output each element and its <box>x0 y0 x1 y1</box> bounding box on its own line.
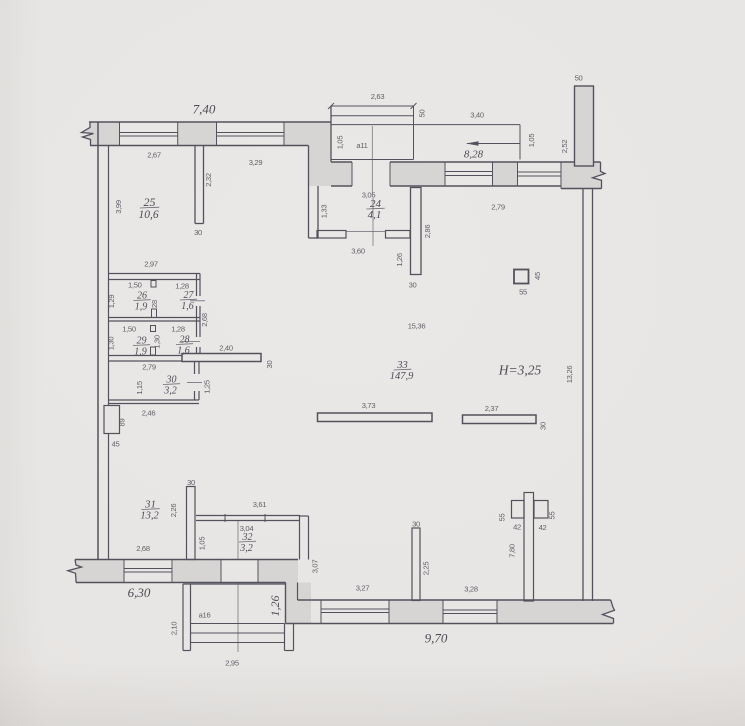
svg-text:7,80: 7,80 <box>508 544 517 558</box>
svg-text:1,33: 1,33 <box>320 205 329 219</box>
svg-text:1,9: 1,9 <box>135 302 148 313</box>
svg-text:50: 50 <box>418 110 427 118</box>
svg-text:1,50: 1,50 <box>122 325 136 334</box>
svg-text:15,36: 15,36 <box>408 322 426 331</box>
svg-text:2,68: 2,68 <box>136 544 150 553</box>
svg-text:2,79: 2,79 <box>491 203 505 212</box>
svg-text:1,15: 1,15 <box>135 381 144 395</box>
svg-text:3,07: 3,07 <box>311 560 320 574</box>
svg-text:30: 30 <box>187 478 195 487</box>
svg-text:3,27: 3,27 <box>356 584 370 593</box>
svg-text:25: 25 <box>144 195 156 209</box>
svg-text:147,9: 147,9 <box>390 371 414 382</box>
svg-text:2,68: 2,68 <box>200 313 209 327</box>
svg-text:a11: a11 <box>356 141 367 150</box>
svg-text:30: 30 <box>194 228 202 237</box>
svg-text:3,29: 3,29 <box>249 158 263 167</box>
svg-text:1,28: 1,28 <box>175 281 189 290</box>
svg-text:4,1: 4,1 <box>368 209 382 221</box>
svg-text:55: 55 <box>548 512 557 520</box>
svg-text:2,97: 2,97 <box>144 260 158 269</box>
svg-text:55: 55 <box>498 514 507 522</box>
svg-text:30: 30 <box>265 361 274 369</box>
svg-text:1,05: 1,05 <box>336 136 345 150</box>
svg-text:2,32: 2,32 <box>204 173 213 187</box>
svg-text:3,73: 3,73 <box>362 401 376 410</box>
svg-text:28: 28 <box>150 300 159 308</box>
svg-text:1,30: 1,30 <box>107 337 116 351</box>
svg-text:9,70: 9,70 <box>425 631 448 646</box>
svg-text:30: 30 <box>412 520 420 529</box>
svg-text:89: 89 <box>118 419 127 427</box>
svg-text:2,10: 2,10 <box>170 622 179 636</box>
svg-text:6,30: 6,30 <box>128 585 151 600</box>
svg-text:2,63: 2,63 <box>371 92 385 101</box>
svg-text:3,61: 3,61 <box>253 500 267 509</box>
svg-text:7,40: 7,40 <box>193 102 216 117</box>
svg-text:3,99: 3,99 <box>114 200 123 214</box>
svg-text:30: 30 <box>409 281 417 290</box>
svg-text:1,30: 1,30 <box>153 335 162 349</box>
svg-text:30: 30 <box>539 422 548 430</box>
svg-text:2,67: 2,67 <box>147 151 161 160</box>
svg-text:42: 42 <box>539 523 547 532</box>
svg-text:8,28: 8,28 <box>464 149 484 161</box>
svg-text:1,6: 1,6 <box>181 301 194 312</box>
svg-text:2,52: 2,52 <box>560 140 569 154</box>
svg-text:3,2: 3,2 <box>239 543 253 554</box>
svg-text:2,79: 2,79 <box>142 363 156 372</box>
svg-text:50: 50 <box>575 74 583 83</box>
svg-text:H=3,25: H=3,25 <box>498 363 542 378</box>
svg-text:3,40: 3,40 <box>470 111 484 120</box>
svg-text:10,6: 10,6 <box>138 209 158 221</box>
svg-text:42: 42 <box>513 523 521 532</box>
svg-text:3,28: 3,28 <box>464 585 478 594</box>
svg-text:a16: a16 <box>199 611 211 620</box>
svg-text:1,05: 1,05 <box>198 537 207 551</box>
svg-text:2,37: 2,37 <box>485 404 499 413</box>
svg-text:3,2: 3,2 <box>163 386 177 397</box>
svg-text:1,25: 1,25 <box>203 380 212 394</box>
svg-text:1,9: 1,9 <box>134 347 147 358</box>
svg-text:1,6: 1,6 <box>177 346 190 357</box>
svg-text:2,46: 2,46 <box>142 409 156 418</box>
svg-text:2,25: 2,25 <box>422 562 431 576</box>
svg-text:1,26: 1,26 <box>395 253 404 267</box>
svg-text:45: 45 <box>533 272 542 280</box>
svg-text:3,60: 3,60 <box>351 247 365 256</box>
svg-text:1,05: 1,05 <box>527 134 536 148</box>
svg-text:1,50: 1,50 <box>128 281 142 290</box>
svg-text:1,26: 1,26 <box>268 596 282 617</box>
svg-text:45: 45 <box>112 440 120 449</box>
svg-text:13,26: 13,26 <box>565 366 574 384</box>
svg-text:1,29: 1,29 <box>107 295 116 309</box>
svg-text:2,40: 2,40 <box>219 344 233 353</box>
svg-text:2,26: 2,26 <box>169 504 178 518</box>
svg-text:13,2: 13,2 <box>140 511 159 522</box>
svg-text:2,86: 2,86 <box>423 225 432 239</box>
svg-text:55: 55 <box>519 288 527 297</box>
svg-text:1,28: 1,28 <box>171 325 185 334</box>
svg-text:2,95: 2,95 <box>225 659 239 668</box>
